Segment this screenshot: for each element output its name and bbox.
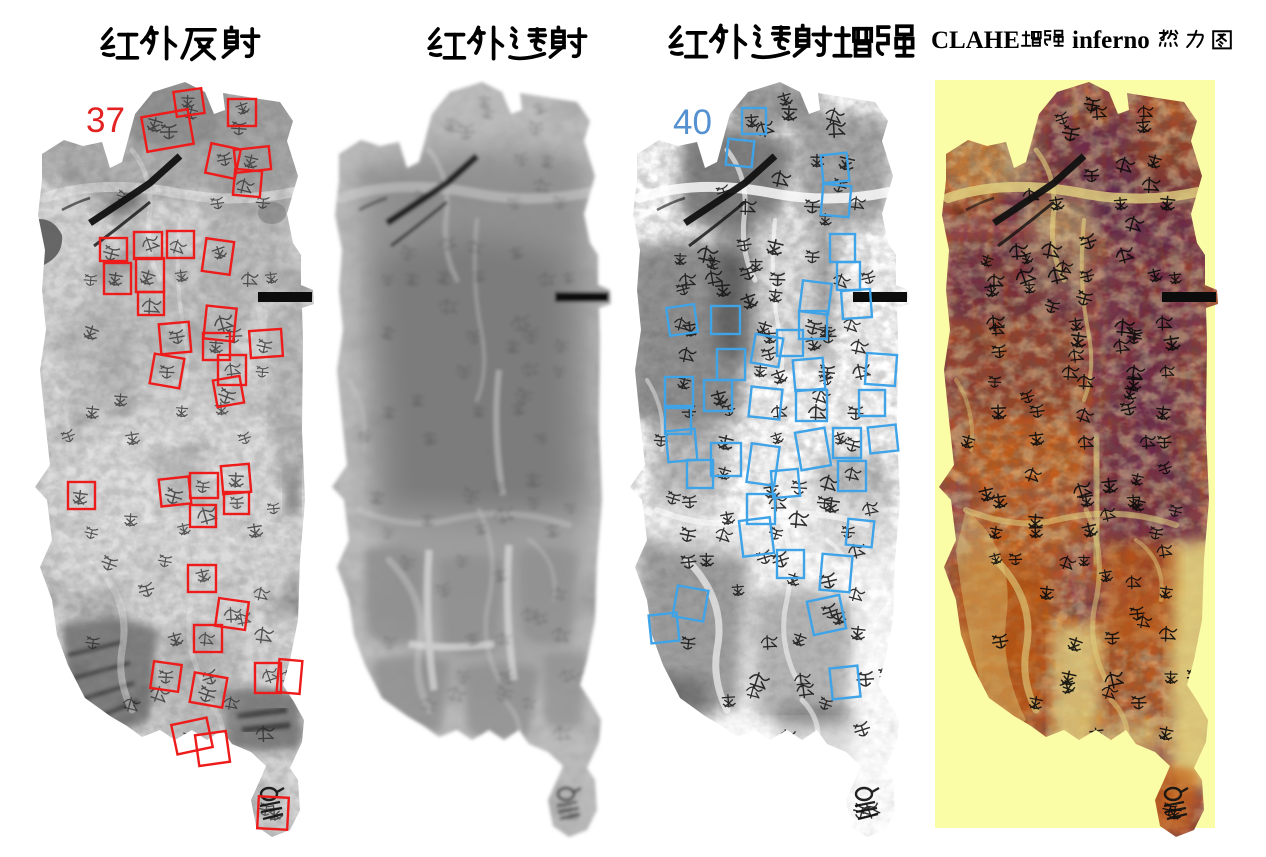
- svg-text:inferno: inferno: [1072, 27, 1150, 54]
- svg-text:37: 37: [86, 101, 125, 140]
- svg-text:40: 40: [673, 103, 712, 142]
- svg-text:CLAHE: CLAHE: [931, 27, 1020, 54]
